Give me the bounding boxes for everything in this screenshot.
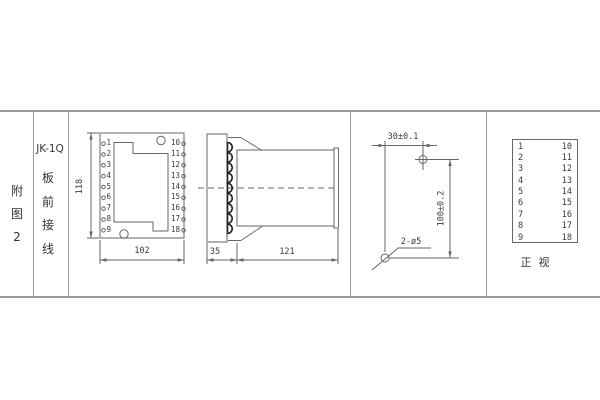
table-cell: 7: [518, 210, 523, 221]
table-cell: 16: [562, 210, 572, 221]
front-terminal-numbers-right: 101112131415161718: [158, 138, 180, 235]
arrowhead: [89, 232, 92, 239]
terminal-circle: [102, 142, 106, 146]
terminal-number: 17: [158, 214, 180, 225]
hole-label-2-d5: 2-ø5: [391, 237, 431, 247]
terminal-number: 10: [158, 138, 180, 149]
terminal-bump: [228, 214, 233, 223]
table-cell: 6: [518, 198, 523, 209]
arrowhead: [448, 160, 451, 167]
terminal-bump: [228, 143, 233, 152]
arrowhead: [207, 258, 214, 261]
front-terminal-numbers-left: 123456789: [107, 138, 121, 235]
terminal-number: 8: [107, 214, 121, 225]
arrowhead: [237, 258, 244, 261]
terminal-bump: [228, 204, 233, 213]
terminal-bump: [228, 173, 233, 182]
terminal-number: 9: [107, 225, 121, 236]
terminal-number: 16: [158, 203, 180, 214]
table-cell: 10: [562, 142, 572, 153]
table-cell: 2: [518, 153, 523, 164]
side-view: [198, 134, 339, 264]
dim-text-121: 121: [267, 247, 307, 257]
terminal-circle: [102, 218, 106, 222]
side-end-cap: [334, 148, 339, 228]
arrowhead: [100, 258, 107, 261]
table-cell: 4: [518, 176, 523, 187]
arrowhead: [231, 258, 238, 261]
terminal-number: 6: [107, 192, 121, 203]
terminal-number: 3: [107, 160, 121, 171]
dim-text-100: 100±0.2: [437, 189, 450, 227]
terminal-table-right-column: 101112131415161718: [562, 140, 577, 242]
table-cell: 5: [518, 187, 523, 198]
table-cell: 18: [562, 233, 572, 244]
terminal-table-left-column: 123456789: [513, 140, 523, 242]
arrowhead: [423, 144, 430, 147]
table-cell: 8: [518, 221, 523, 232]
front-terminals-left: [102, 142, 106, 232]
arrowhead: [178, 258, 185, 261]
terminal-number: 2: [107, 149, 121, 160]
terminal-circle: [102, 196, 106, 200]
table-cell: 12: [562, 164, 572, 175]
table-cell: 3: [518, 164, 523, 175]
terminal-number: 5: [107, 182, 121, 193]
terminal-bump: [228, 153, 233, 162]
dim-text-102: 102: [122, 246, 162, 256]
terminal-bump: [228, 163, 233, 172]
terminal-bump: [228, 224, 233, 233]
terminal-circle: [102, 174, 106, 178]
side-top-chamfer: [241, 138, 262, 151]
drawing-linework: [0, 0, 600, 400]
table-cell: 9: [518, 233, 523, 244]
table-cell: 13: [562, 176, 572, 187]
table-cell: 15: [562, 198, 572, 209]
dim-text-35: 35: [203, 247, 227, 257]
table-cell: 1: [518, 142, 523, 153]
view-caption: 正 视: [505, 254, 565, 270]
terminal-circle: [102, 164, 106, 168]
terminal-circle: [102, 207, 106, 211]
terminal-number: 4: [107, 171, 121, 182]
terminal-number: 13: [158, 171, 180, 182]
side-bottom-chamfer: [241, 227, 262, 241]
arrowhead: [89, 133, 92, 140]
terminal-number: 1: [107, 138, 121, 149]
terminal-bump: [228, 194, 233, 203]
terminal-circle: [102, 229, 106, 233]
arrowhead: [448, 252, 451, 259]
table-cell: 17: [562, 221, 572, 232]
mounting-hole-bottom: [120, 230, 128, 238]
dim-text-30: 30±0.1: [387, 132, 419, 142]
terminal-number: 12: [158, 160, 180, 171]
terminal-table: 123456789 101112131415161718: [512, 139, 578, 243]
table-cell: 14: [562, 187, 572, 198]
arrowhead: [379, 144, 386, 147]
terminal-number: 15: [158, 192, 180, 203]
terminal-number: 14: [158, 182, 180, 193]
terminal-circle: [102, 153, 106, 157]
terminal-number: 18: [158, 225, 180, 236]
table-cell: 11: [562, 153, 572, 164]
drawing-canvas: 附图2 JK-1Q 板前接线: [0, 0, 600, 400]
dim-text-118: 118: [75, 174, 88, 199]
arrowhead: [332, 258, 339, 261]
terminal-circle: [102, 185, 106, 189]
terminal-number: 7: [107, 203, 121, 214]
terminal-number: 11: [158, 149, 180, 160]
